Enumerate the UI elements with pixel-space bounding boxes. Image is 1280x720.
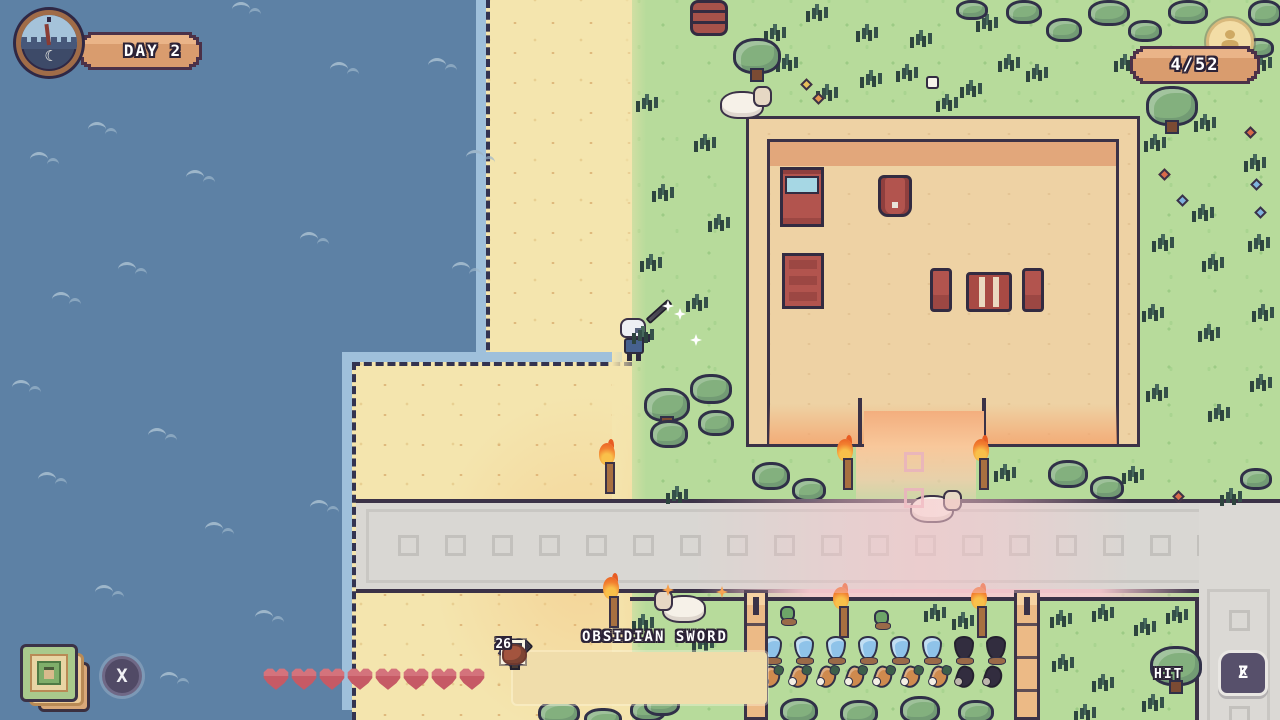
card-portrait [37, 661, 61, 685]
collection-counter: 4/52 [1130, 46, 1260, 84]
heart-icon [346, 666, 374, 692]
card-stack-button[interactable] [18, 642, 96, 712]
heart-icon [374, 666, 402, 692]
day-banner: DAY 2 [78, 32, 202, 70]
heart-icon [458, 666, 486, 692]
x-button-label: X [116, 667, 127, 686]
item-count: 6 [503, 638, 511, 651]
counter-label: 4/52 [1171, 57, 1220, 74]
day-night-clock: ☾ [16, 10, 82, 76]
action-hint-label: HIT [1154, 668, 1183, 681]
zr-button-label: R [1239, 664, 1246, 678]
hud-overlay: DAY 2 ☾ 4/52 [0, 0, 1280, 720]
zr-button[interactable]: Z R [1218, 650, 1268, 696]
card-frame [30, 654, 68, 692]
heart-icon [318, 666, 346, 692]
game-screen: DAY 2 ☾ 4/52 [0, 0, 1280, 720]
hotbar: 276 [513, 652, 767, 704]
clock-tick [47, 17, 51, 22]
heart-icon [262, 666, 290, 692]
x-button[interactable]: X [102, 656, 142, 696]
heart-icon [290, 666, 318, 692]
heart-icon [430, 666, 458, 692]
day-label: DAY 2 [124, 43, 182, 59]
moon-icon: ☾ [44, 49, 53, 64]
selected-item-label: OBSIDIAN SWORD [520, 630, 790, 644]
heart-icon [402, 666, 430, 692]
card-front [20, 644, 78, 702]
